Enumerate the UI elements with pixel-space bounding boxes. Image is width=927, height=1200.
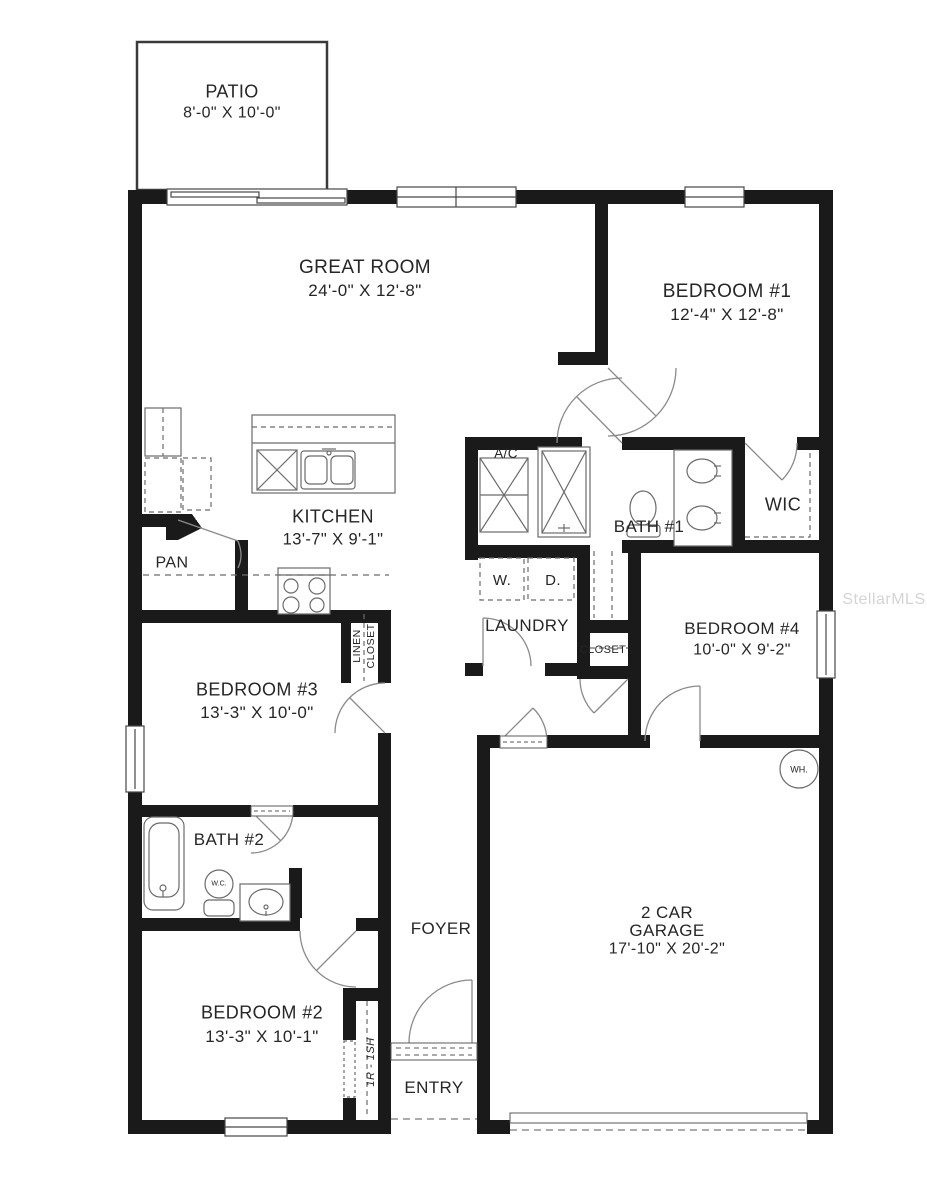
bedroom2-window bbox=[225, 1118, 287, 1136]
linen-label-1: LINEN bbox=[351, 629, 363, 662]
thresholds bbox=[251, 736, 807, 1130]
bedroom4-door bbox=[645, 686, 700, 741]
patio-dims: 8'-0" X 10'-0" bbox=[183, 106, 281, 123]
great-room-window bbox=[397, 187, 516, 207]
bedroom4-dims: 10'-0" X 9'-2" bbox=[693, 643, 791, 660]
hall-closet-label: CLOSET bbox=[580, 645, 626, 657]
entry-closet-label: 1R - 1SH bbox=[365, 1037, 377, 1086]
bedroom1-label: BEDROOM #1 bbox=[663, 282, 792, 302]
great-room-label: GREAT ROOM bbox=[299, 258, 431, 278]
attic-hatch bbox=[594, 551, 612, 618]
bedroom3-label: BEDROOM #3 bbox=[196, 681, 318, 700]
bath2-threshold bbox=[251, 806, 293, 816]
bathtub-icon bbox=[144, 817, 184, 910]
bedroom3-window bbox=[126, 726, 144, 792]
patio-label: PATIO bbox=[205, 83, 258, 102]
bedroom4-label: BEDROOM #4 bbox=[684, 620, 799, 638]
bedroom1-dims: 12'-4" X 12'-8" bbox=[670, 306, 783, 324]
wic-door bbox=[745, 443, 797, 480]
linen-label-2: CLOSET bbox=[365, 623, 377, 668]
front-door bbox=[409, 980, 472, 1043]
pantry-label: PAN bbox=[156, 556, 189, 573]
bedroom1-window bbox=[685, 187, 744, 207]
shower-icon bbox=[538, 447, 590, 537]
washer-label: W. bbox=[493, 573, 511, 589]
garage-overhead-door bbox=[510, 1113, 807, 1130]
garage-label-1: 2 CAR bbox=[641, 904, 693, 922]
wc-label: W.C. bbox=[211, 880, 226, 887]
bath2-label: BATH #2 bbox=[194, 831, 265, 849]
water-closet-icon bbox=[204, 870, 234, 916]
bath2-vanity-icon bbox=[240, 884, 290, 921]
garage-dims: 17'-10" X 20'-2" bbox=[609, 942, 725, 959]
bedroom2-label: BEDROOM #2 bbox=[201, 1004, 323, 1023]
garage-label-2: GARAGE bbox=[629, 922, 704, 940]
bedroom2-door bbox=[300, 931, 356, 987]
walls bbox=[128, 190, 833, 1134]
entry-label: ENTRY bbox=[404, 1079, 463, 1097]
refrigerator-icon bbox=[145, 408, 211, 512]
floor-plan: PATIO 8'-0" X 10'-0" GREAT ROOM 24'-0" X… bbox=[0, 0, 927, 1200]
bedroom2-dims: 13'-3" X 10'-1" bbox=[205, 1028, 318, 1046]
bath1-label: BATH #1 bbox=[614, 518, 685, 536]
dryer-label: D. bbox=[545, 573, 561, 589]
great-room-dims: 24'-0" X 12'-8" bbox=[308, 282, 421, 300]
kitchen-island bbox=[252, 415, 395, 493]
laundry-label: LAUNDRY bbox=[485, 617, 569, 635]
bedroom3-door bbox=[335, 683, 385, 733]
wic-label: WIC bbox=[765, 496, 801, 515]
bedroom4-window bbox=[817, 611, 835, 678]
front-door-threshold bbox=[391, 1043, 477, 1060]
stellar-mls-watermark: StellarMLS bbox=[842, 591, 925, 609]
hall-door bbox=[557, 378, 622, 443]
kitchen-label: KITCHEN bbox=[292, 508, 374, 527]
foyer-label: FOYER bbox=[411, 920, 472, 938]
ac-unit-icon bbox=[480, 458, 528, 532]
hall-closet-door bbox=[580, 679, 628, 713]
garage-door-threshold bbox=[500, 736, 547, 748]
water-heater-label: WH. bbox=[790, 765, 808, 774]
ac-label: A/C bbox=[494, 447, 518, 461]
patio-slider-door bbox=[167, 189, 347, 205]
bedroom3-dims: 13'-3" X 10'-0" bbox=[200, 704, 313, 722]
kitchen-dims: 13'-7" X 9'-1" bbox=[283, 531, 384, 548]
floorplan-graphics bbox=[0, 0, 927, 1200]
